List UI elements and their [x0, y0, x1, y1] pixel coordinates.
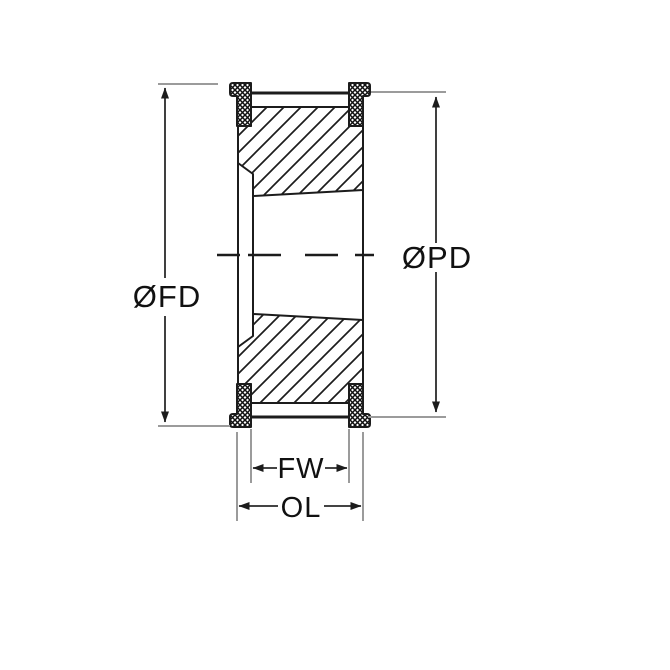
flange-bottom-right [349, 384, 370, 427]
dim-face-width: FW [251, 429, 349, 485]
dim-pitch-diameter: ØPD [368, 92, 472, 417]
label-flange-diameter: ØFD [133, 279, 201, 314]
pulley-diagram-svg: ØFD ØPD FW OL [0, 0, 670, 670]
dim-flange-diameter: ØFD [133, 84, 230, 426]
flange-top-right [349, 83, 370, 126]
pulley-drawing-canvas: ØFD ØPD FW OL [0, 0, 670, 670]
label-pitch-diameter: ØPD [402, 240, 472, 275]
label-overall-length: OL [281, 492, 322, 524]
pulley-upper-section [238, 107, 363, 196]
flange-top-left [230, 83, 251, 126]
pulley-lower-section [238, 314, 363, 403]
label-face-width: FW [277, 453, 324, 485]
flange-bottom-left [230, 384, 251, 427]
